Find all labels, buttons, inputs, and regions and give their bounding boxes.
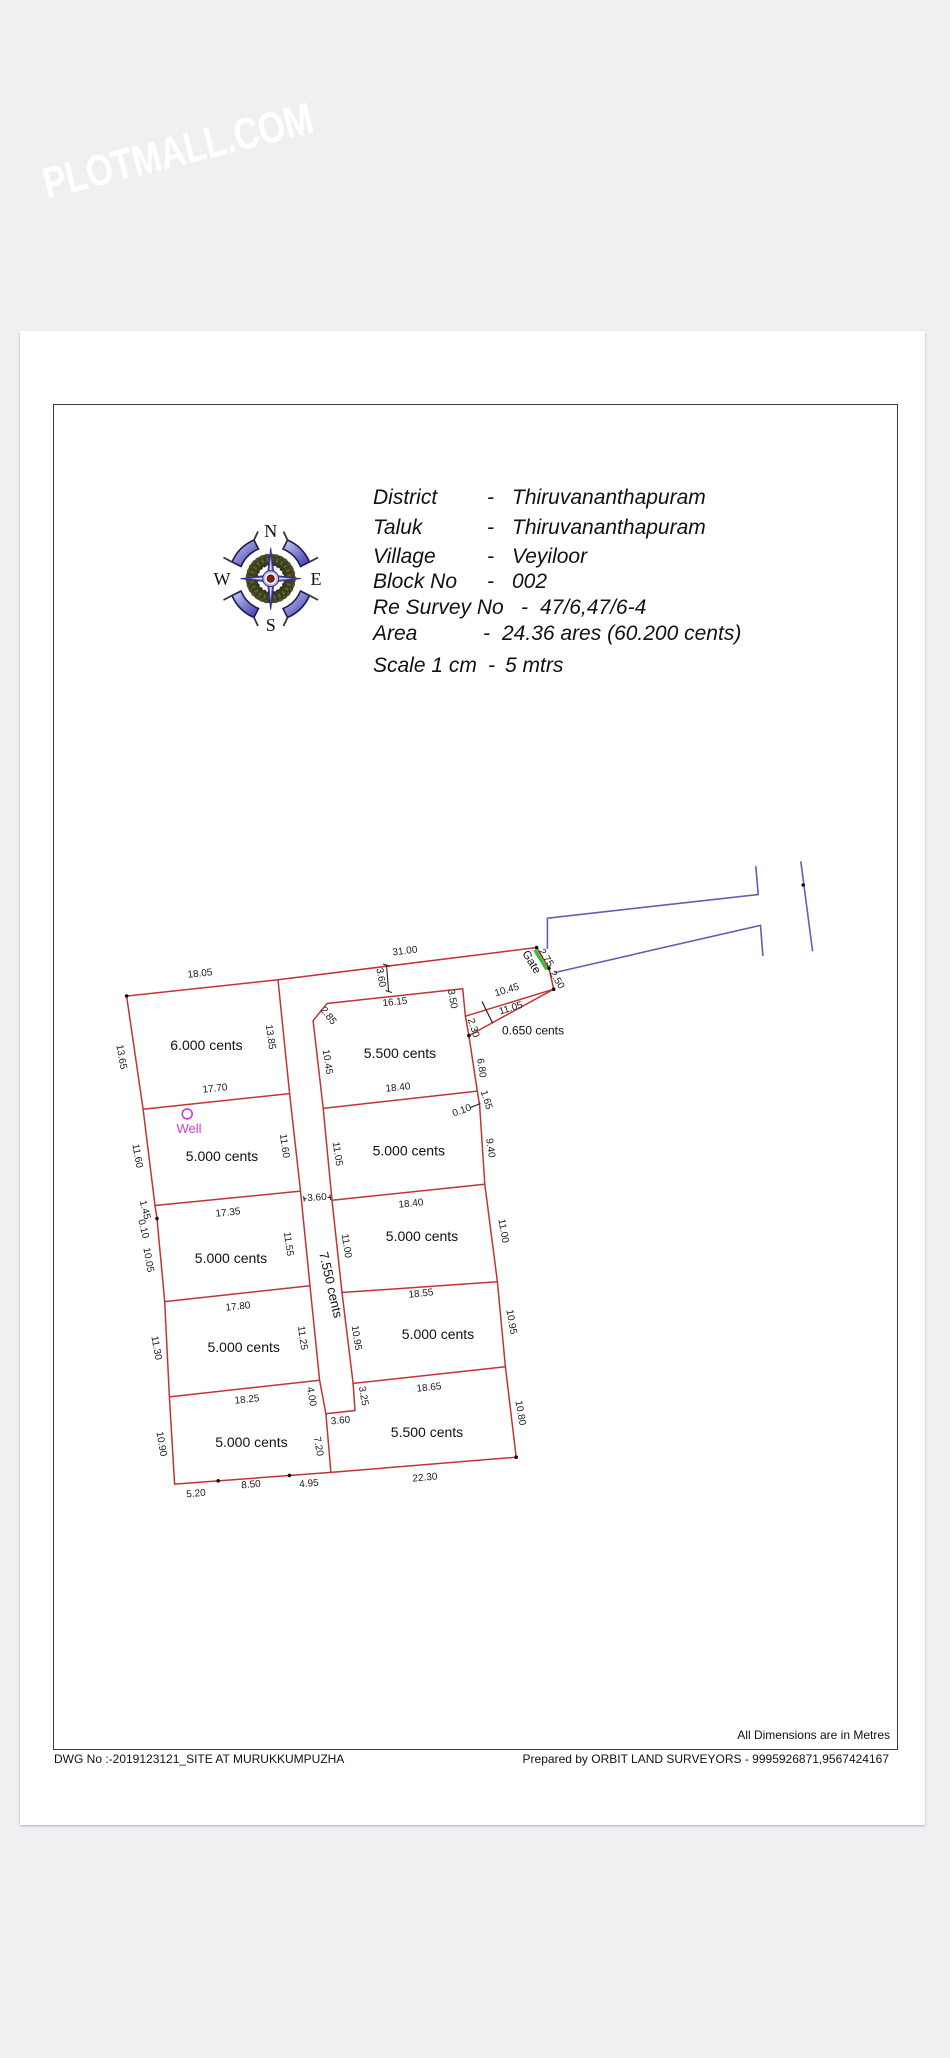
svg-text:16.15: 16.15 [382, 996, 408, 1010]
svg-text:10.95: 10.95 [503, 1309, 518, 1336]
svg-text:7.20: 7.20 [311, 1436, 325, 1458]
svg-text:17.35: 17.35 [215, 1206, 241, 1220]
svg-text:17.80: 17.80 [225, 1300, 251, 1314]
svg-text:5.000 cents: 5.000 cents [208, 1339, 280, 1355]
svg-text:0.650 cents: 0.650 cents [502, 1024, 564, 1038]
svg-text:4.00: 4.00 [304, 1386, 318, 1408]
svg-text:18.65: 18.65 [416, 1381, 442, 1395]
svg-text:11.60: 11.60 [277, 1133, 291, 1159]
svg-text:22.30: 22.30 [412, 1471, 438, 1484]
svg-text:4.95: 4.95 [299, 1478, 320, 1491]
svg-text:3.25: 3.25 [356, 1385, 370, 1407]
svg-text:11.00: 11.00 [339, 1233, 354, 1259]
svg-text:13.65: 13.65 [113, 1044, 128, 1071]
svg-text:Well: Well [176, 1121, 201, 1136]
svg-text:10.45: 10.45 [493, 981, 521, 999]
svg-text:5.20: 5.20 [186, 1488, 207, 1501]
svg-text:11.00: 11.00 [495, 1218, 510, 1244]
svg-text:E: E [311, 569, 322, 589]
svg-text:0.10: 0.10 [451, 1102, 473, 1119]
svg-text:10.90: 10.90 [153, 1431, 168, 1458]
svg-text:5.000 cents: 5.000 cents [386, 1228, 458, 1244]
svg-text:8.50: 8.50 [241, 1479, 262, 1492]
svg-text:11.30: 11.30 [148, 1335, 163, 1361]
svg-text:18.05: 18.05 [187, 967, 213, 981]
svg-text:5.000 cents: 5.000 cents [402, 1326, 474, 1342]
svg-text:10.95: 10.95 [349, 1325, 364, 1352]
svg-text:3.60: 3.60 [373, 967, 387, 989]
svg-text:18.40: 18.40 [385, 1081, 411, 1095]
svg-text:11.05: 11.05 [330, 1141, 345, 1167]
svg-text:10.05: 10.05 [140, 1247, 155, 1274]
svg-text:W: W [214, 569, 231, 589]
svg-text:9.40: 9.40 [483, 1138, 497, 1159]
svg-text:N: N [264, 521, 277, 541]
svg-text:5.000 cents: 5.000 cents [186, 1148, 258, 1164]
svg-text:13.85: 13.85 [263, 1024, 277, 1051]
svg-text:6.80: 6.80 [474, 1058, 488, 1079]
svg-text:11.05: 11.05 [498, 1000, 525, 1018]
svg-text:3.60: 3.60 [330, 1415, 351, 1428]
svg-text:3.60: 3.60 [307, 1192, 328, 1204]
svg-text:0.10: 0.10 [135, 1218, 151, 1240]
svg-text:11.55: 11.55 [281, 1231, 295, 1257]
svg-text:31.00: 31.00 [392, 944, 419, 958]
svg-text:11.25: 11.25 [295, 1325, 309, 1351]
svg-text:5.000 cents: 5.000 cents [373, 1143, 445, 1159]
svg-text:2.85: 2.85 [318, 1005, 339, 1027]
svg-text:10.45: 10.45 [320, 1049, 335, 1076]
svg-text:10.80: 10.80 [512, 1400, 527, 1427]
svg-text:17.70: 17.70 [202, 1082, 228, 1096]
svg-text:5.000 cents: 5.000 cents [195, 1250, 267, 1266]
svg-text:3.50: 3.50 [445, 988, 459, 1010]
svg-text:5.500 cents: 5.500 cents [391, 1424, 463, 1440]
svg-text:11.60: 11.60 [129, 1143, 144, 1169]
svg-text:S: S [266, 615, 276, 635]
svg-text:18.55: 18.55 [408, 1287, 434, 1301]
svg-text:2.50: 2.50 [547, 969, 567, 992]
svg-text:18.25: 18.25 [234, 1393, 260, 1407]
svg-text:5.000 cents: 5.000 cents [215, 1434, 287, 1450]
svg-text:6.000 cents: 6.000 cents [170, 1037, 242, 1053]
svg-text:18.40: 18.40 [398, 1197, 424, 1211]
svg-text:5.500 cents: 5.500 cents [364, 1045, 436, 1061]
